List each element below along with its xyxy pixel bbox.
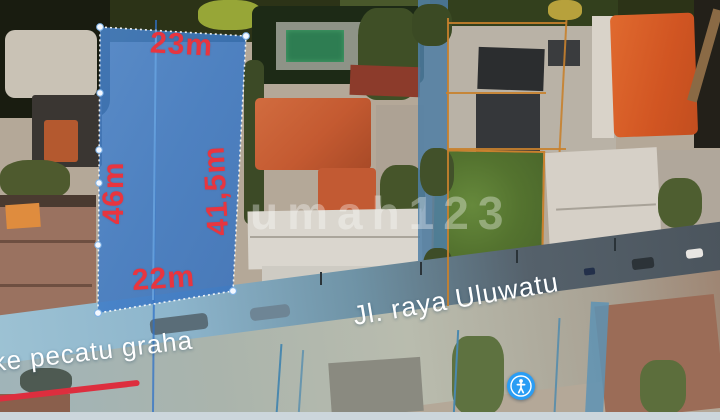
plot-dimension-bottom: 22m bbox=[131, 260, 196, 298]
bottom-bar bbox=[0, 412, 720, 420]
plot-dimension-right: 41,5m bbox=[198, 153, 228, 236]
pedestrian-icon bbox=[509, 374, 533, 398]
pedestrian-poi[interactable] bbox=[507, 372, 535, 400]
plot-dimension-left: 46m bbox=[97, 159, 123, 227]
plot-dimension-top: 23m bbox=[149, 26, 214, 63]
satellite-map[interactable]: 23m 46m 41,5m 22m Jl. raya Uluwatu ke pe… bbox=[0, 0, 720, 420]
